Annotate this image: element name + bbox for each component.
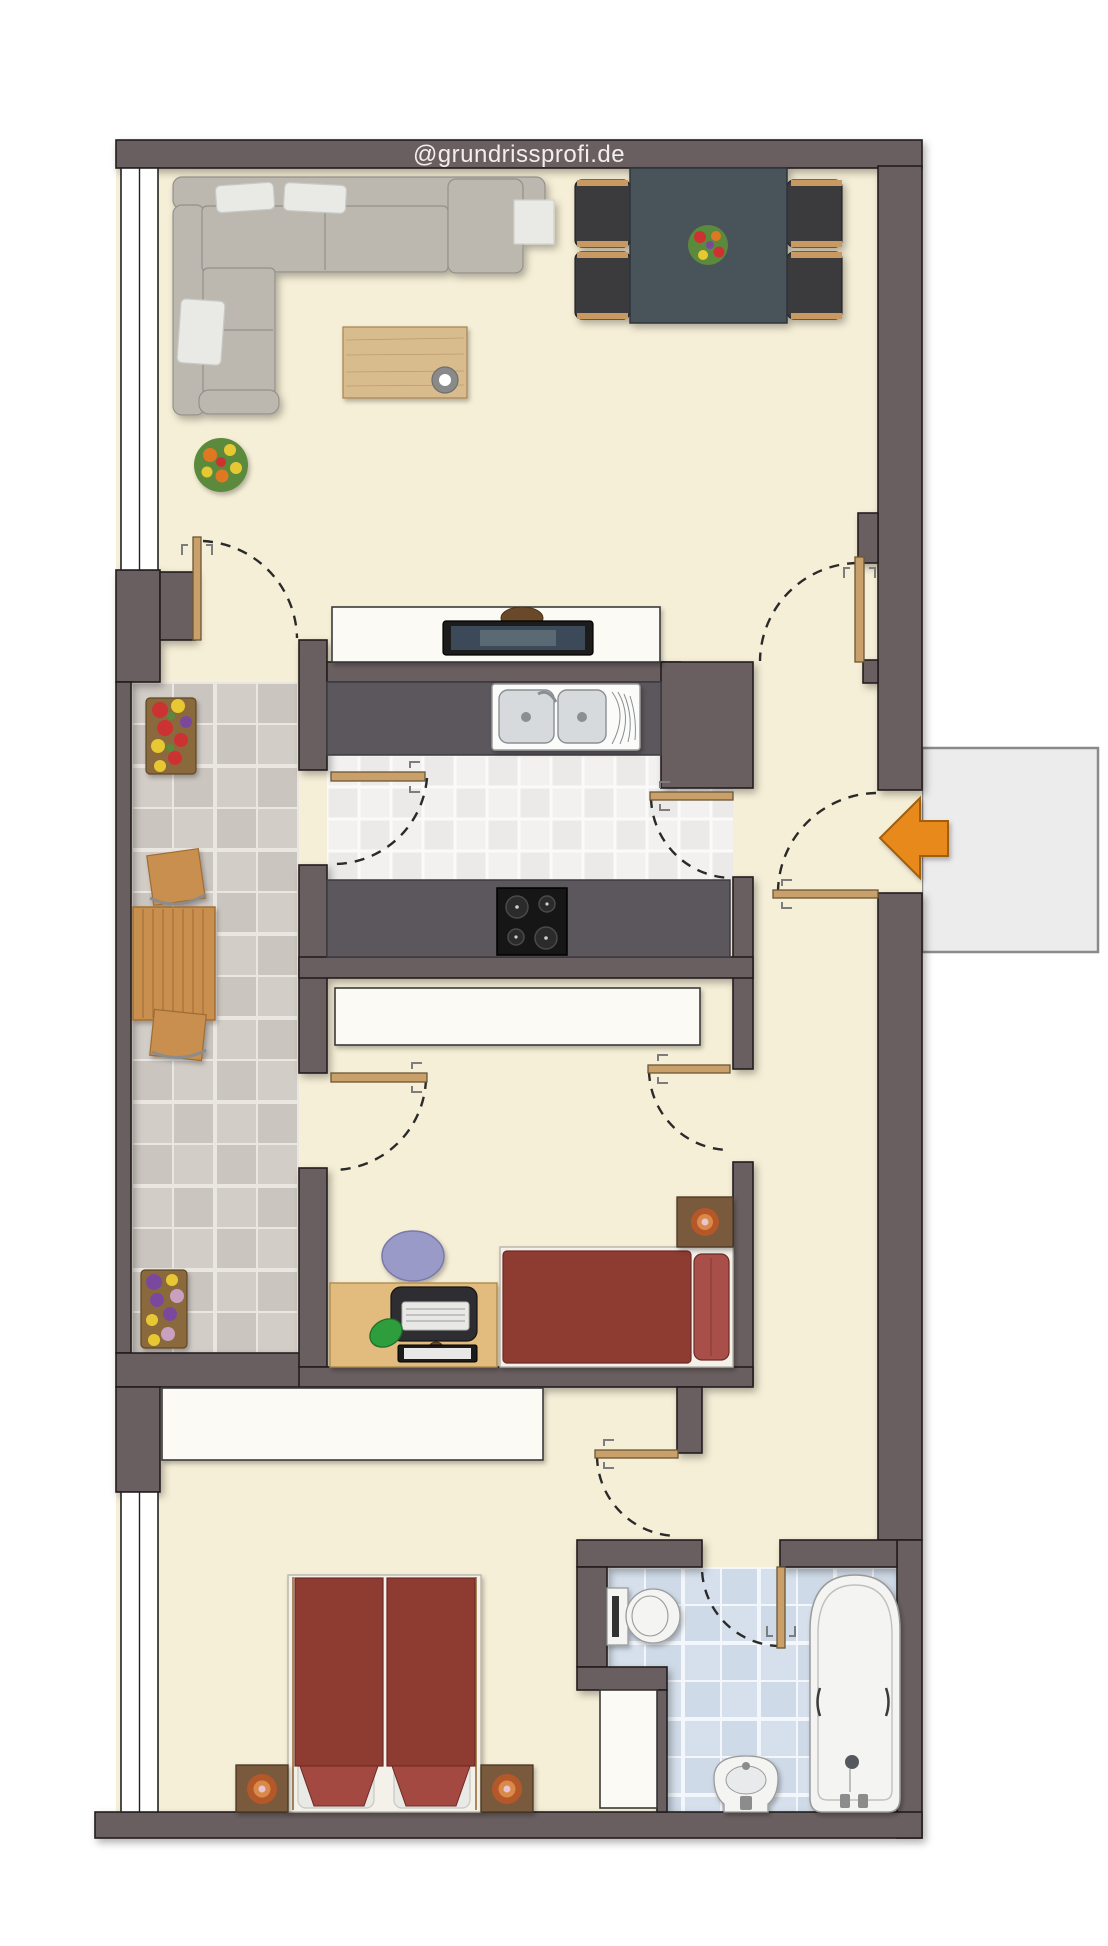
- wall-bottom: [95, 1812, 922, 1838]
- dining-chair: [575, 180, 630, 247]
- wall-bath-top-right: [780, 1540, 897, 1567]
- wall-stub-balcony-door: [160, 572, 195, 640]
- door-leaf-bathroom: [777, 1567, 785, 1648]
- coffee-table: [343, 327, 467, 398]
- door-leaf-kitchen-balcony: [331, 772, 425, 781]
- tablet-icon: [443, 621, 593, 655]
- wall-kitchen-bottom: [299, 957, 753, 978]
- dining-chair: [575, 252, 630, 319]
- bed-blanket-fold: [300, 1766, 378, 1806]
- keyboard-icon: [402, 1302, 469, 1330]
- wall-bath-left-lower: [657, 1690, 667, 1812]
- sideboard: [332, 607, 660, 662]
- sofa-side-table: [514, 200, 554, 244]
- single-bed-blanket: [503, 1251, 691, 1363]
- bathroom-cupboard: [600, 1690, 657, 1808]
- office-chair: [382, 1231, 444, 1281]
- wall-kitchen-right-pillar: [661, 662, 753, 788]
- wall-kitchen-left-upper: [299, 640, 327, 770]
- office-wardrobe: [335, 988, 700, 1045]
- door-leaf-office-balcony: [331, 1073, 427, 1082]
- bed-blanket-fold: [392, 1766, 470, 1806]
- wall-right-middle: [878, 893, 922, 1540]
- wall-bath-top-left: [577, 1540, 702, 1567]
- wall-stub-bedroom-door: [677, 1387, 702, 1453]
- kitchen-sink-icon: [492, 684, 640, 750]
- wall-office-left: [299, 1168, 327, 1367]
- flower-box-upper: [146, 698, 196, 774]
- balcony-chair-upper: [147, 849, 206, 906]
- door-leaf-entrance: [773, 890, 878, 898]
- dining-chair: [787, 180, 842, 247]
- window-bedroom: [121, 1492, 158, 1812]
- sofa-pillow: [177, 299, 225, 366]
- wall-stub-hall-door-upper: [858, 513, 878, 563]
- watermark-text: @grundrissprofi.de: [413, 141, 625, 168]
- wall-below-balcony: [116, 1353, 310, 1387]
- door-leaf-living-hall: [855, 557, 864, 662]
- double-bed: [288, 1575, 481, 1812]
- window-living-room: [121, 168, 158, 570]
- bathtub-icon: [810, 1575, 900, 1812]
- sofa-pillow: [283, 182, 346, 213]
- stove-icon: [497, 888, 567, 955]
- wall-office-right-lower: [733, 1162, 753, 1385]
- wall-left-mid: [116, 570, 160, 682]
- toilet-icon: [607, 1588, 680, 1645]
- bed-blanket-left: [295, 1578, 383, 1766]
- bedroom-wardrobe: [162, 1388, 543, 1460]
- laptop-screen: [404, 1348, 471, 1359]
- balcony-parapet: [116, 682, 131, 1353]
- floorplan-canvas: @grundrissprofi.de: [0, 0, 1108, 1946]
- wall-bath-left: [577, 1567, 607, 1667]
- wall-kitchen-top: [327, 662, 680, 682]
- door-leaf-living-balcony: [193, 537, 201, 640]
- door-leaf-bedroom: [595, 1450, 678, 1458]
- wall-bath-jog: [577, 1667, 667, 1690]
- door-leaf-kitchen-hall: [650, 792, 733, 800]
- wall-stub-hall-door-lower: [863, 660, 878, 683]
- dining-set: [575, 168, 842, 323]
- balcony-chair-lower: [150, 1009, 207, 1060]
- office-nightstand: [677, 1197, 733, 1247]
- floorplan-page: @grundrissprofi.de: [0, 0, 1108, 1946]
- plant-icon: [194, 438, 248, 492]
- washbasin-icon: [714, 1756, 778, 1812]
- dining-chair: [787, 252, 842, 319]
- bedroom-nightstand-right: [481, 1765, 533, 1812]
- wall-right-upper: [878, 166, 922, 790]
- flower-box-lower: [141, 1270, 187, 1348]
- bed-blanket-right: [387, 1578, 475, 1766]
- single-bed: [500, 1247, 733, 1367]
- table-flowers-icon: [688, 225, 728, 265]
- wall-office-bottom: [299, 1367, 753, 1387]
- sofa-pillow: [215, 182, 275, 213]
- bedroom-nightstand-left: [236, 1765, 288, 1812]
- wall-left-bedroom-upper: [116, 1387, 160, 1492]
- balcony-table: [133, 907, 215, 1020]
- door-leaf-office-hall: [648, 1065, 730, 1073]
